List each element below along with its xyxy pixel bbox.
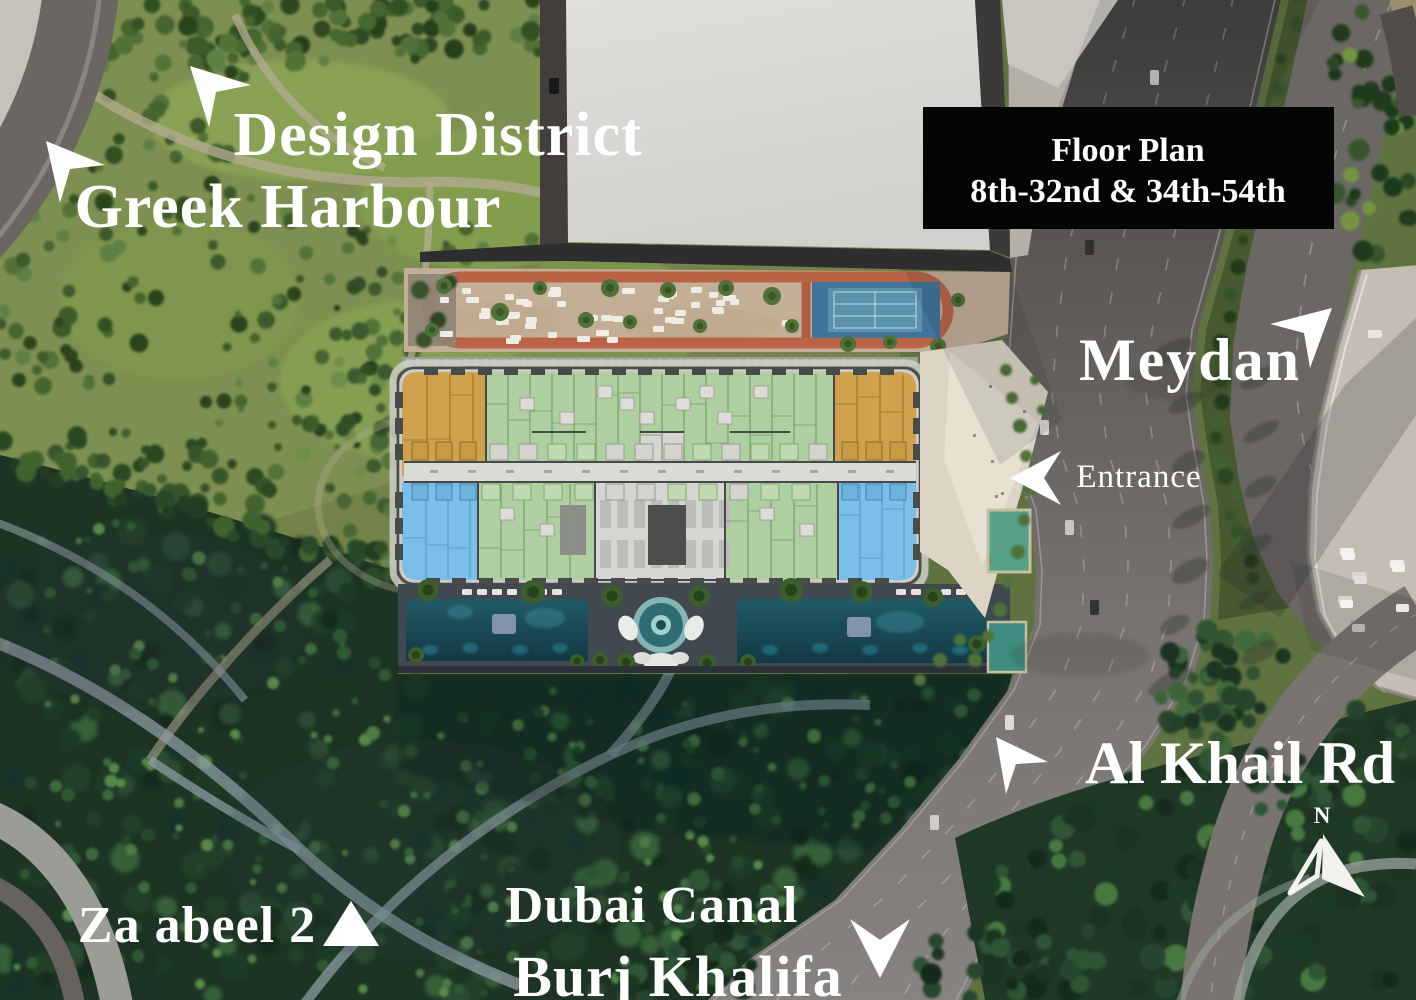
svg-text:Meydan: Meydan bbox=[1079, 327, 1301, 393]
svg-text:N: N bbox=[1314, 803, 1331, 828]
svg-text:8th-32nd & 34th-54th: 8th-32nd & 34th-54th bbox=[970, 173, 1286, 210]
svg-text:Greek Harbour: Greek Harbour bbox=[75, 173, 502, 241]
svg-text:Al Khail Rd: Al Khail Rd bbox=[1085, 730, 1395, 796]
svg-text:Floor Plan: Floor Plan bbox=[1051, 132, 1204, 169]
svg-text:Design District: Design District bbox=[233, 101, 642, 169]
svg-text:Dubai Canal: Dubai Canal bbox=[506, 877, 799, 934]
svg-text:Entrance: Entrance bbox=[1076, 459, 1201, 495]
svg-text:Za abeel 2: Za abeel 2 bbox=[78, 897, 316, 954]
svg-text:Burj Khalifa: Burj Khalifa bbox=[513, 944, 842, 1000]
